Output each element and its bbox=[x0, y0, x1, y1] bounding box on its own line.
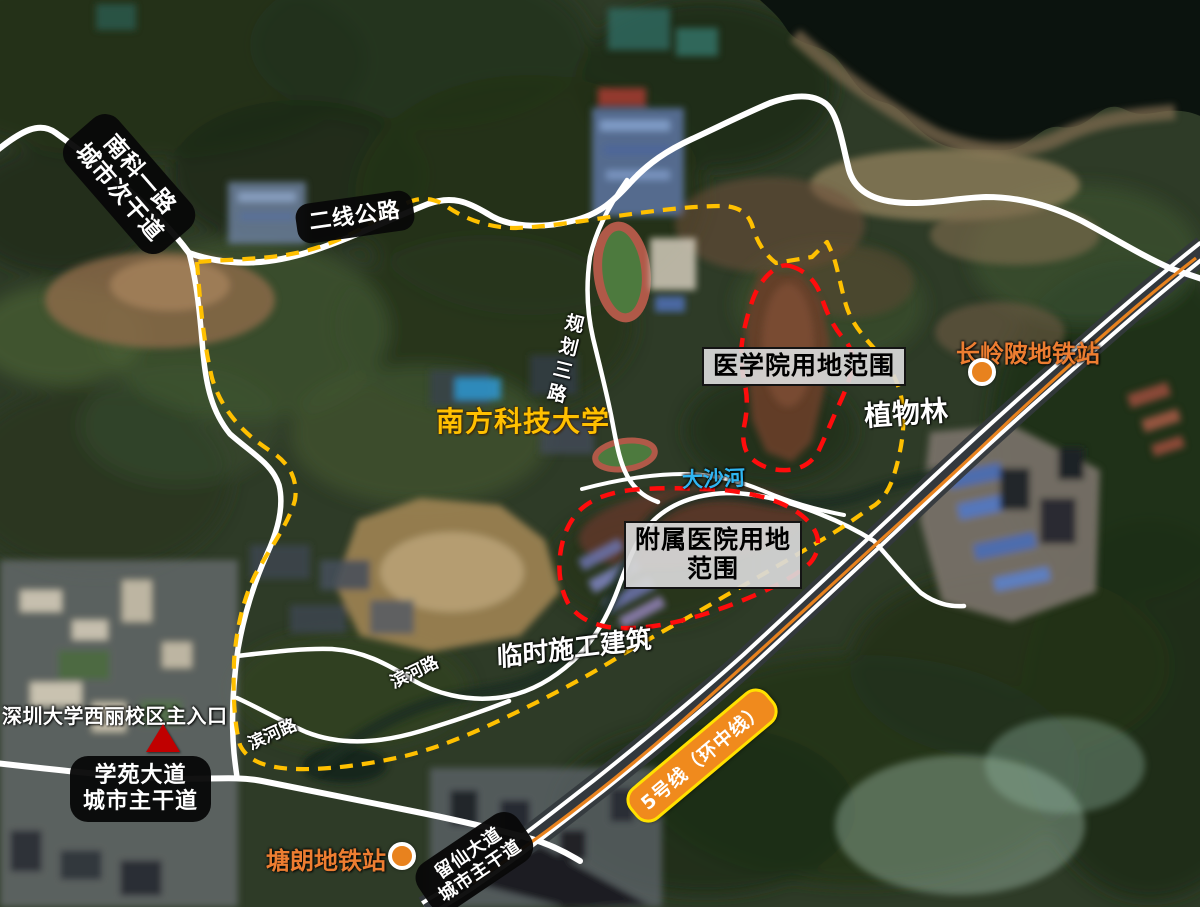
road-label-line: 学苑大道 bbox=[83, 763, 198, 789]
hospital-label: 附属医院用地 范围 bbox=[624, 521, 802, 589]
station-label-tanglang: 塘朗地铁站 bbox=[266, 841, 386, 876]
university-label: 南方科技大学 bbox=[436, 400, 610, 440]
road-label-xueyuan-dadao: 学苑大道 城市主干道 bbox=[70, 756, 211, 822]
botanic-forest-label: 植物林 bbox=[863, 389, 950, 435]
medical-school-label: 医学院用地范围 bbox=[702, 347, 906, 386]
satellite-planning-map: 南科一路 城市次干道 二线公路 规划三路 南方科技大学 医学院用地范围 植物林 … bbox=[0, 0, 1200, 907]
hospital-label-line: 附属医院用地 bbox=[635, 526, 791, 555]
entrance-triangle-icon bbox=[146, 724, 180, 752]
road-label-line: 城市主干道 bbox=[83, 789, 198, 815]
changlingpo-station-marker-icon bbox=[968, 358, 996, 386]
szu-entrance-label: 深圳大学西丽校区主入口 bbox=[2, 700, 228, 729]
hospital-label-line: 范围 bbox=[635, 555, 791, 584]
river-label: 大沙河 bbox=[681, 462, 745, 494]
tanglang-station-marker-icon bbox=[388, 842, 416, 870]
